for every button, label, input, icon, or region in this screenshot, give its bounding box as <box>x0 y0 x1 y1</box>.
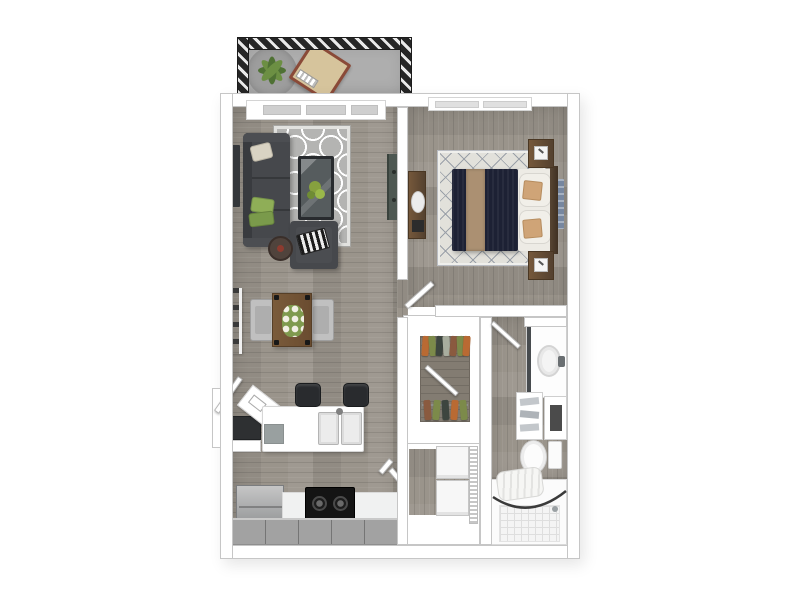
vanity <box>526 322 567 398</box>
wall-bedroom-bottom <box>435 305 567 317</box>
clothing-item <box>462 336 470 356</box>
sofa-seam <box>252 177 290 179</box>
bed-runner <box>466 169 485 251</box>
bedroom-window <box>428 97 532 111</box>
dresser-tray <box>411 191 425 213</box>
dresser <box>408 171 426 239</box>
window-pane <box>263 105 301 115</box>
lamp-mark <box>538 148 544 153</box>
vanity-faucet <box>558 356 565 367</box>
balcony-railing-top <box>237 37 412 50</box>
nightstand <box>528 251 554 280</box>
cube-shelf-opening <box>550 405 562 431</box>
bar-stool <box>343 383 369 407</box>
towel <box>520 423 539 431</box>
burner <box>333 496 348 511</box>
towel <box>520 410 540 419</box>
table-leg <box>305 295 310 300</box>
nightstand-lamp <box>534 258 548 272</box>
console-knob <box>392 198 396 202</box>
bar-stool <box>295 383 321 407</box>
flower-centerpiece <box>282 305 304 337</box>
bedroom-doorway-floor <box>397 280 408 317</box>
toilet-tank <box>548 441 562 469</box>
clothing-item <box>441 400 449 420</box>
coffee-table <box>298 156 334 220</box>
cube-shelf <box>544 396 567 440</box>
balcony-railing-left <box>237 37 249 95</box>
clothing-item <box>450 400 458 420</box>
chair-seat <box>313 306 329 334</box>
sink-faucet <box>336 408 343 415</box>
towel-shelf <box>516 392 543 440</box>
clothing-item <box>432 400 441 421</box>
base-cabinets <box>233 518 397 545</box>
window-pane <box>306 105 346 115</box>
wall-left <box>220 93 233 559</box>
table-plant <box>307 191 315 199</box>
wall-art-bedroom <box>558 179 564 229</box>
burner <box>312 496 327 511</box>
wall-bathroom-top <box>524 317 567 327</box>
washer-dryer-lower <box>436 480 469 516</box>
floorplan-canvas <box>0 0 800 600</box>
table-plant <box>315 189 325 199</box>
towel <box>520 397 540 406</box>
dining-table <box>272 293 312 347</box>
window-pane <box>351 105 378 115</box>
wall-right <box>567 93 580 559</box>
potted-plant <box>258 56 286 84</box>
living-room-window <box>246 100 386 120</box>
louvered-door <box>469 446 478 524</box>
shower-curtain <box>495 466 545 502</box>
table-leg <box>274 340 279 345</box>
clothing-item <box>423 400 431 420</box>
sofa-arm <box>243 133 290 142</box>
bed-pillow-tan <box>522 180 543 201</box>
clothing-item <box>459 400 468 421</box>
wall-divider <box>397 107 408 280</box>
console-knob <box>392 170 396 174</box>
lamp-mark <box>538 260 544 265</box>
chair-seat <box>255 306 271 334</box>
wall-art-left <box>232 145 240 207</box>
side-table-decor <box>277 245 284 252</box>
counter-cooktop-square <box>264 424 284 444</box>
washer-dryer-upper <box>436 446 469 479</box>
nightstand <box>528 139 554 168</box>
table-leg <box>274 295 279 300</box>
sink-basin <box>341 412 362 445</box>
wall-bottom <box>220 545 580 559</box>
side-table <box>268 236 293 261</box>
hanging-clothes <box>420 336 470 422</box>
bathtub <box>490 479 567 545</box>
entry-shelf <box>231 440 261 452</box>
bed <box>452 169 558 251</box>
sink-basin <box>318 412 339 445</box>
balcony-railing-right <box>400 37 412 95</box>
bed-duvet <box>452 169 518 251</box>
table-leg <box>305 340 310 345</box>
wall-mid-vertical <box>397 317 408 545</box>
bed-pillow-tan <box>522 218 543 239</box>
vanity-edge <box>527 323 531 399</box>
window-pane <box>483 101 527 108</box>
headboard <box>550 166 558 254</box>
tub-drain <box>552 506 558 512</box>
fridge-seam <box>239 506 283 508</box>
wall-bathroom-left <box>480 317 492 545</box>
nightstand-lamp <box>534 146 548 160</box>
dresser-box <box>412 220 424 232</box>
window-pane <box>435 101 479 108</box>
